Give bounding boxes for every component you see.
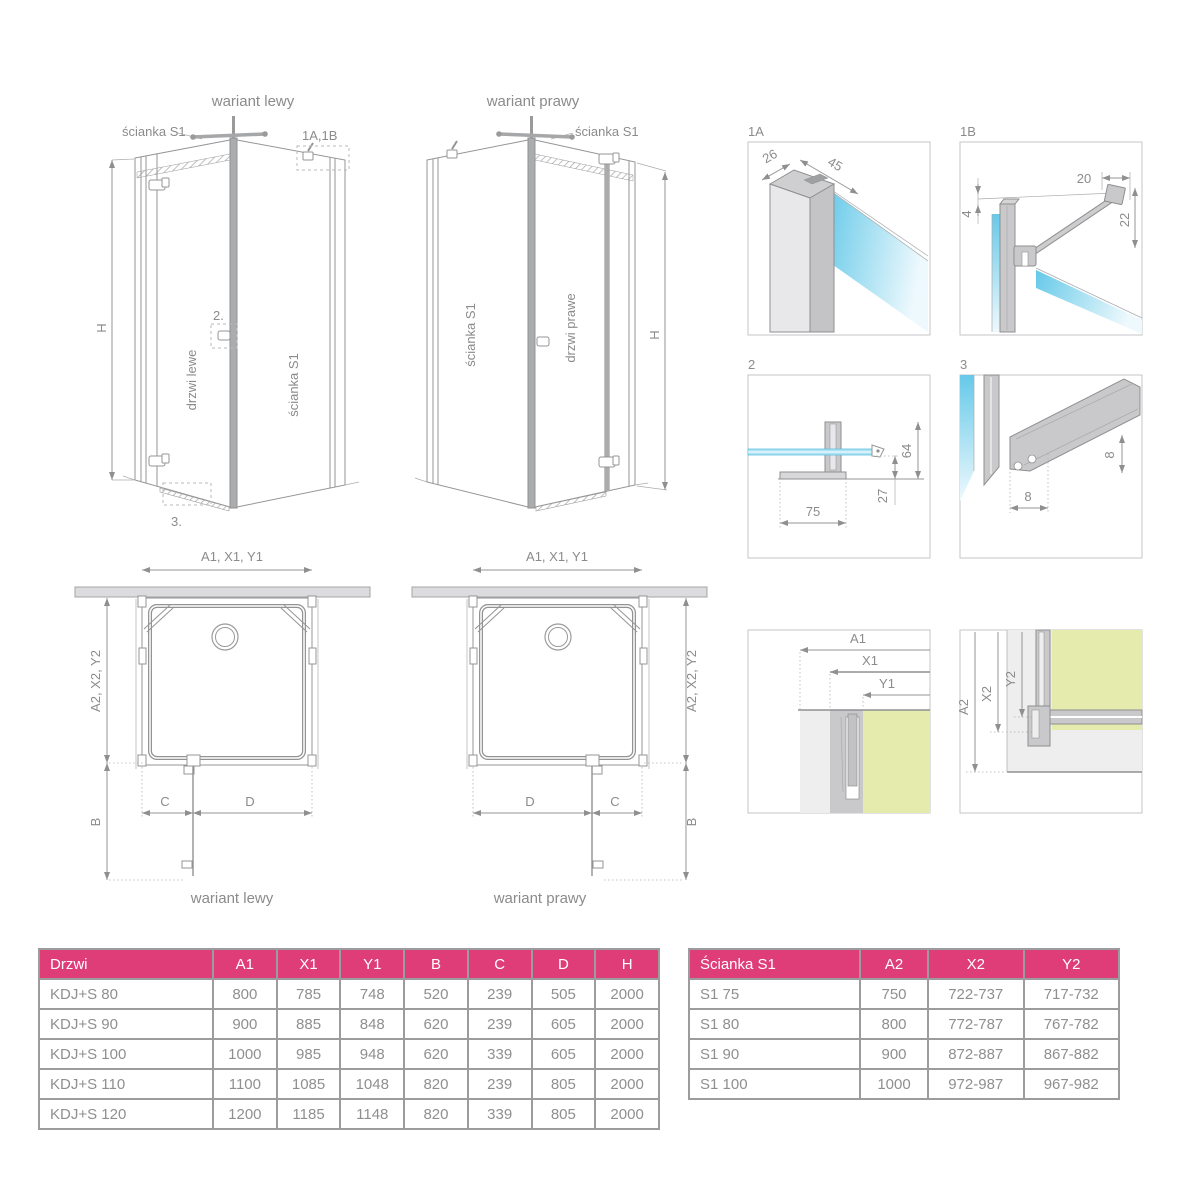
- row-label: KDJ+S 100: [39, 1039, 213, 1069]
- cell-value: 1100: [213, 1069, 277, 1099]
- table-row: S1 80800772-787767-782: [689, 1009, 1119, 1039]
- corner-block: [308, 596, 316, 607]
- row-label: KDJ+S 110: [39, 1069, 213, 1099]
- column-header: B: [404, 949, 468, 979]
- ref-seal-label: 3.: [171, 514, 182, 529]
- detail-1a: 1A 26 45: [740, 120, 940, 345]
- plan-right-caption: wariant prawy: [493, 890, 587, 907]
- door-pivot: [187, 755, 200, 766]
- corner-block: [469, 755, 477, 766]
- corner-block: [138, 755, 146, 766]
- wall-section-plan: [798, 710, 930, 813]
- corner-detail-vertical: A2 X2 Y2: [952, 622, 1152, 822]
- c-dim-label: C: [610, 794, 619, 809]
- table-row: S1 90900872-887867-882: [689, 1039, 1119, 1069]
- dim-8-side-label: 8: [1102, 451, 1117, 458]
- row-label: S1 75: [689, 979, 860, 1009]
- a2-label: A2: [956, 699, 971, 715]
- dim-75-label: 75: [806, 504, 820, 519]
- cell-value: 239: [468, 1009, 532, 1039]
- cell-value: 717-732: [1024, 979, 1120, 1009]
- row-label: S1 90: [689, 1039, 860, 1069]
- side-wall-label: ścianka S1: [463, 303, 478, 367]
- cell-value: 967-982: [1024, 1069, 1120, 1099]
- cell-value: 605: [532, 1009, 596, 1039]
- detail-3-label: 3: [960, 357, 967, 372]
- wall-s1-label: ścianka S1: [575, 124, 639, 139]
- height-label: H: [94, 323, 109, 332]
- cell-value: 1000: [213, 1039, 277, 1069]
- table-row: S1 75750722-737717-732: [689, 979, 1119, 1009]
- b-dim-label: B: [88, 818, 103, 827]
- door-pivot: [586, 755, 599, 766]
- corner-block: [639, 596, 647, 607]
- height-dimension: H: [637, 163, 667, 490]
- door-panel-right: [535, 140, 635, 507]
- door-panel-label: drzwi prawe: [563, 293, 578, 362]
- door-handle-plan: [593, 861, 603, 868]
- column-header: A1: [213, 949, 277, 979]
- dim-20-label: 20: [1077, 171, 1091, 186]
- table-row: KDJ+S 909008858486202396052000: [39, 1009, 659, 1039]
- plan-depth-dim-label: A2, X2, Y2: [684, 650, 699, 712]
- depth-dimension: A2, X2, Y2 B: [604, 598, 699, 880]
- corner-detail-horizontal: A1 X1 Y1: [740, 622, 940, 822]
- detail-1a-label: 1A: [748, 124, 764, 139]
- table-row: S1 1001000972-987967-982: [689, 1069, 1119, 1099]
- shower-enclosure-spec-sheet: wariant lewy ścianka S1 H 1A,1B 2. 3: [0, 0, 1200, 1200]
- y1-label: Y1: [879, 676, 895, 691]
- cell-value: 1185: [277, 1099, 341, 1129]
- side-bracket: [139, 648, 146, 664]
- door-panel-label: drzwi lewe: [184, 350, 199, 411]
- cell-value: 620: [404, 1039, 468, 1069]
- door-handle: [537, 337, 549, 346]
- detail-1b: 1B 20 4 22: [952, 120, 1152, 345]
- cell-value: 620: [404, 1009, 468, 1039]
- d-dim-label: D: [245, 794, 254, 809]
- cell-value: 2000: [595, 1009, 659, 1039]
- column-header: X1: [277, 949, 341, 979]
- column-header: A2: [860, 949, 928, 979]
- b-dim-label: B: [684, 818, 699, 827]
- column-header: Y2: [1024, 949, 1120, 979]
- x1-label: X1: [862, 653, 878, 668]
- side-bracket: [470, 648, 477, 664]
- cell-value: 867-882: [1024, 1039, 1120, 1069]
- detail-1b-label: 1B: [960, 124, 976, 139]
- side-bracket: [640, 648, 647, 664]
- open-door-plan: [586, 755, 603, 876]
- glass-zone: [863, 710, 930, 813]
- cell-value: 805: [532, 1069, 596, 1099]
- ref-1a1b-label: 1A,1B: [302, 128, 337, 143]
- cell-value: 505: [532, 979, 596, 1009]
- column-header: Y1: [340, 949, 404, 979]
- cd-dimension: D C: [473, 767, 642, 818]
- cell-value: 2000: [595, 1069, 659, 1099]
- cell-value: 785: [277, 979, 341, 1009]
- plan-width-dim-label: A1, X1, Y1: [201, 549, 263, 564]
- corner-profile: [528, 138, 535, 508]
- detail-2: 2 64 27 75: [740, 355, 940, 570]
- view3d-left-title: wariant lewy: [211, 93, 295, 110]
- cell-value: 772-787: [928, 1009, 1024, 1039]
- cell-value: 848: [340, 1009, 404, 1039]
- row-label: S1 100: [689, 1069, 860, 1099]
- wall-bracket: [1104, 184, 1125, 204]
- row-label: KDJ+S 80: [39, 979, 213, 1009]
- dim-27-label: 27: [875, 489, 890, 503]
- wall-section-plan: [1007, 630, 1142, 772]
- wall-bracket: [447, 150, 457, 158]
- cell-value: 1048: [340, 1069, 404, 1099]
- enclosure-plan: [136, 596, 318, 769]
- y2-label: Y2: [1003, 671, 1018, 687]
- dim-22-label: 22: [1117, 213, 1132, 227]
- cell-value: 339: [468, 1099, 532, 1129]
- cell-value: 900: [860, 1039, 928, 1069]
- depth-dimension: A2, X2, Y2 B: [88, 598, 185, 880]
- cell-value: 985: [277, 1039, 341, 1069]
- table-row: KDJ+S 1201200118511488203398052000: [39, 1099, 659, 1129]
- cell-value: 800: [213, 979, 277, 1009]
- cell-value: 750: [860, 979, 928, 1009]
- plan-left-caption: wariant lewy: [190, 890, 274, 907]
- open-door-plan: [182, 755, 200, 876]
- corner-profile: [230, 138, 237, 508]
- height-dimension: H: [94, 159, 134, 480]
- cell-value: 972-987: [928, 1069, 1024, 1099]
- c-dim-label: C: [160, 794, 169, 809]
- dim-4-label: 4: [959, 210, 974, 217]
- cell-value: 520: [404, 979, 468, 1009]
- ref-handle-label: 2.: [213, 308, 224, 323]
- cell-value: 820: [404, 1069, 468, 1099]
- height-label: H: [647, 330, 662, 339]
- cell-value: 239: [468, 979, 532, 1009]
- plan-view-right: A1, X1, Y1 D C A2, X2, Y2: [390, 545, 730, 915]
- corner-block: [308, 755, 316, 766]
- column-header: X2: [928, 949, 1024, 979]
- cell-value: 2000: [595, 979, 659, 1009]
- side-bracket: [309, 648, 316, 664]
- row-label: KDJ+S 120: [39, 1099, 213, 1129]
- wall-panel-dimensions-table: Ścianka S1A2X2Y2S1 75750722-737717-732S1…: [688, 948, 1120, 1100]
- cell-value: 2000: [595, 1039, 659, 1069]
- door-panel-left: [135, 140, 230, 507]
- cell-value: 239: [468, 1069, 532, 1099]
- wall-section: [75, 587, 370, 597]
- corner-block: [138, 596, 146, 607]
- enclosure-plan: [467, 596, 649, 769]
- column-header: C: [468, 949, 532, 979]
- door-handle: [218, 331, 230, 340]
- plan-depth-dim-label: A2, X2, Y2: [88, 650, 103, 712]
- cell-value: 1148: [340, 1099, 404, 1129]
- x2-label: X2: [979, 686, 994, 702]
- d-dim-label: D: [525, 794, 534, 809]
- dim-8-bottom-label: 8: [1024, 489, 1031, 504]
- base-plate: [780, 472, 846, 479]
- a1-label: A1: [850, 631, 866, 646]
- cell-value: 1085: [277, 1069, 341, 1099]
- wall-section: [412, 587, 707, 597]
- cell-value: 2000: [595, 1099, 659, 1129]
- cell-value: 605: [532, 1039, 596, 1069]
- plan-width-dim-label: A1, X1, Y1: [526, 549, 588, 564]
- cell-value: 339: [468, 1039, 532, 1069]
- cell-value: 900: [213, 1009, 277, 1039]
- doors-dimensions-table: DrzwiA1X1Y1BCDHKDJ+S 8080078574852023950…: [38, 948, 660, 1130]
- cell-value: 805: [532, 1099, 596, 1129]
- cell-value: 1200: [213, 1099, 277, 1129]
- column-header: D: [532, 949, 596, 979]
- support-bar: [499, 134, 572, 137]
- detail-2-label: 2: [748, 357, 755, 372]
- cell-value: 885: [277, 1009, 341, 1039]
- view3d-right-variant: wariant prawy ścianka S1 H ścianka S1 dr…: [395, 80, 725, 550]
- side-wall-label: ścianka S1: [286, 353, 301, 417]
- cell-value: 1000: [860, 1069, 928, 1099]
- side-wall-panel: [237, 140, 345, 507]
- cell-value: 948: [340, 1039, 404, 1069]
- cell-value: 722-737: [928, 979, 1024, 1009]
- view3d-left-variant: wariant lewy ścianka S1 H 1A,1B 2. 3: [65, 80, 395, 550]
- support-bar: [193, 134, 265, 137]
- dim-64-label: 64: [899, 444, 914, 458]
- door-handle-plan: [182, 861, 192, 868]
- cell-value: 767-782: [1024, 1009, 1120, 1039]
- detail-3: 3 8 8: [952, 355, 1152, 570]
- glass-panel: [992, 214, 1000, 332]
- column-header: Ścianka S1: [689, 949, 860, 979]
- view3d-right-title: wariant prawy: [486, 93, 580, 110]
- cell-value: 748: [340, 979, 404, 1009]
- cd-dimension: C D: [142, 767, 312, 818]
- cell-value: 872-887: [928, 1039, 1024, 1069]
- cell-value: 820: [404, 1099, 468, 1129]
- table-row: KDJ+S 1101100108510488202398052000: [39, 1069, 659, 1099]
- column-header: H: [595, 949, 659, 979]
- table-row: KDJ+S 10010009859486203396052000: [39, 1039, 659, 1069]
- row-label: S1 80: [689, 1009, 860, 1039]
- cell-value: 800: [860, 1009, 928, 1039]
- wall-s1-label: ścianka S1: [122, 124, 186, 139]
- plan-view-left: A1, X1, Y1 C D A2, X2, Y2: [60, 545, 400, 915]
- row-label: KDJ+S 90: [39, 1009, 213, 1039]
- corner-block: [639, 755, 647, 766]
- table-row: KDJ+S 808007857485202395052000: [39, 979, 659, 1009]
- corner-block: [469, 596, 477, 607]
- column-header: Drzwi: [39, 949, 213, 979]
